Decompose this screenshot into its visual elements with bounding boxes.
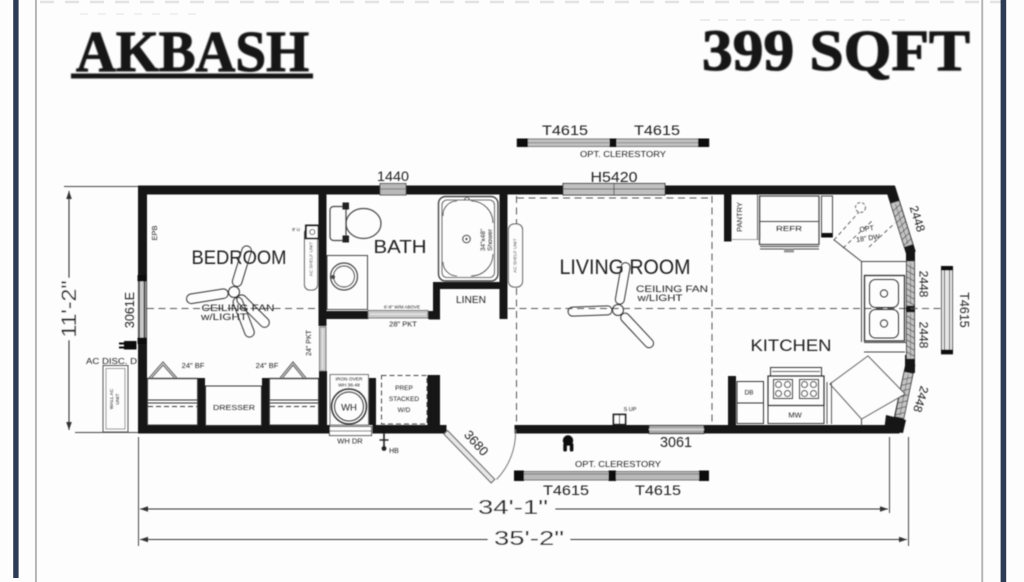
svg-text:LINEN: LINEN <box>456 295 486 306</box>
svg-text:WALL AC: WALL AC <box>109 388 115 409</box>
svg-text:24" BF: 24" BF <box>182 361 205 370</box>
svg-text:WH: WH <box>341 403 357 414</box>
svg-text:DRESSER: DRESSER <box>213 403 256 412</box>
svg-text:1440: 1440 <box>377 168 409 184</box>
svg-text:IRON OVER: IRON OVER <box>336 377 363 383</box>
svg-text:DB: DB <box>744 390 753 397</box>
svg-text:2448: 2448 <box>917 271 931 298</box>
svg-text:6'-8" W/M ABOVE: 6'-8" W/M ABOVE <box>384 305 420 310</box>
svg-text:T4615: T4615 <box>542 122 588 138</box>
svg-text:35'-2": 35'-2" <box>494 528 564 550</box>
svg-text:BATH: BATH <box>374 237 427 257</box>
svg-text:Shower: Shower <box>487 228 494 251</box>
svg-text:OPT. CLERESTORY: OPT. CLERESTORY <box>575 460 662 469</box>
svg-text:MW: MW <box>788 411 802 420</box>
svg-text:2448: 2448 <box>917 322 931 349</box>
svg-text:WH DR: WH DR <box>337 437 363 446</box>
svg-text:T4615: T4615 <box>957 292 971 327</box>
svg-text:24" BF: 24" BF <box>256 361 279 370</box>
svg-text:PANTRY: PANTRY <box>735 202 744 232</box>
svg-text:w/LIGHT: w/LIGHT <box>636 293 683 303</box>
svg-text:3061: 3061 <box>660 434 692 451</box>
svg-text:34"x48": 34"x48" <box>480 228 487 251</box>
svg-text:OPT. CLERESTORY: OPT. CLERESTORY <box>580 150 667 159</box>
svg-text:UNIT: UNIT <box>115 393 121 404</box>
svg-text:AC DISC. D: AC DISC. D <box>86 357 137 366</box>
svg-text:KITCHEN: KITCHEN <box>751 336 832 355</box>
svg-text:28" PKT: 28" PKT <box>389 320 417 329</box>
svg-text:AC SHELF UNIT: AC SHELF UNIT <box>513 238 518 273</box>
svg-text:T4615: T4615 <box>634 122 680 138</box>
svg-text:STACKED: STACKED <box>389 396 420 403</box>
svg-text:34'-1": 34'-1" <box>478 497 548 519</box>
svg-text:PREP: PREP <box>395 385 413 392</box>
svg-text:S UP: S UP <box>624 407 637 413</box>
svg-text:AC SHELF UNIT: AC SHELF UNIT <box>309 242 314 277</box>
svg-text:WH 36-48: WH 36-48 <box>338 383 360 389</box>
svg-text:11'-2": 11'-2" <box>58 281 81 338</box>
svg-text:T4615: T4615 <box>543 482 589 498</box>
svg-text:8' U: 8' U <box>292 227 300 232</box>
svg-text:W/D: W/D <box>398 407 411 414</box>
svg-text:3061E: 3061E <box>123 292 137 328</box>
svg-text:REFR: REFR <box>776 224 803 233</box>
svg-text:HB: HB <box>389 448 399 455</box>
svg-text:LIVING ROOM: LIVING ROOM <box>560 256 691 279</box>
svg-text:w/LIGHT: w/LIGHT <box>200 312 248 322</box>
svg-text:EPB: EPB <box>150 225 159 240</box>
svg-text:24" PKT: 24" PKT <box>306 329 313 356</box>
svg-text:399 SQFT: 399 SQFT <box>702 18 970 83</box>
svg-text:T4615: T4615 <box>635 482 681 498</box>
